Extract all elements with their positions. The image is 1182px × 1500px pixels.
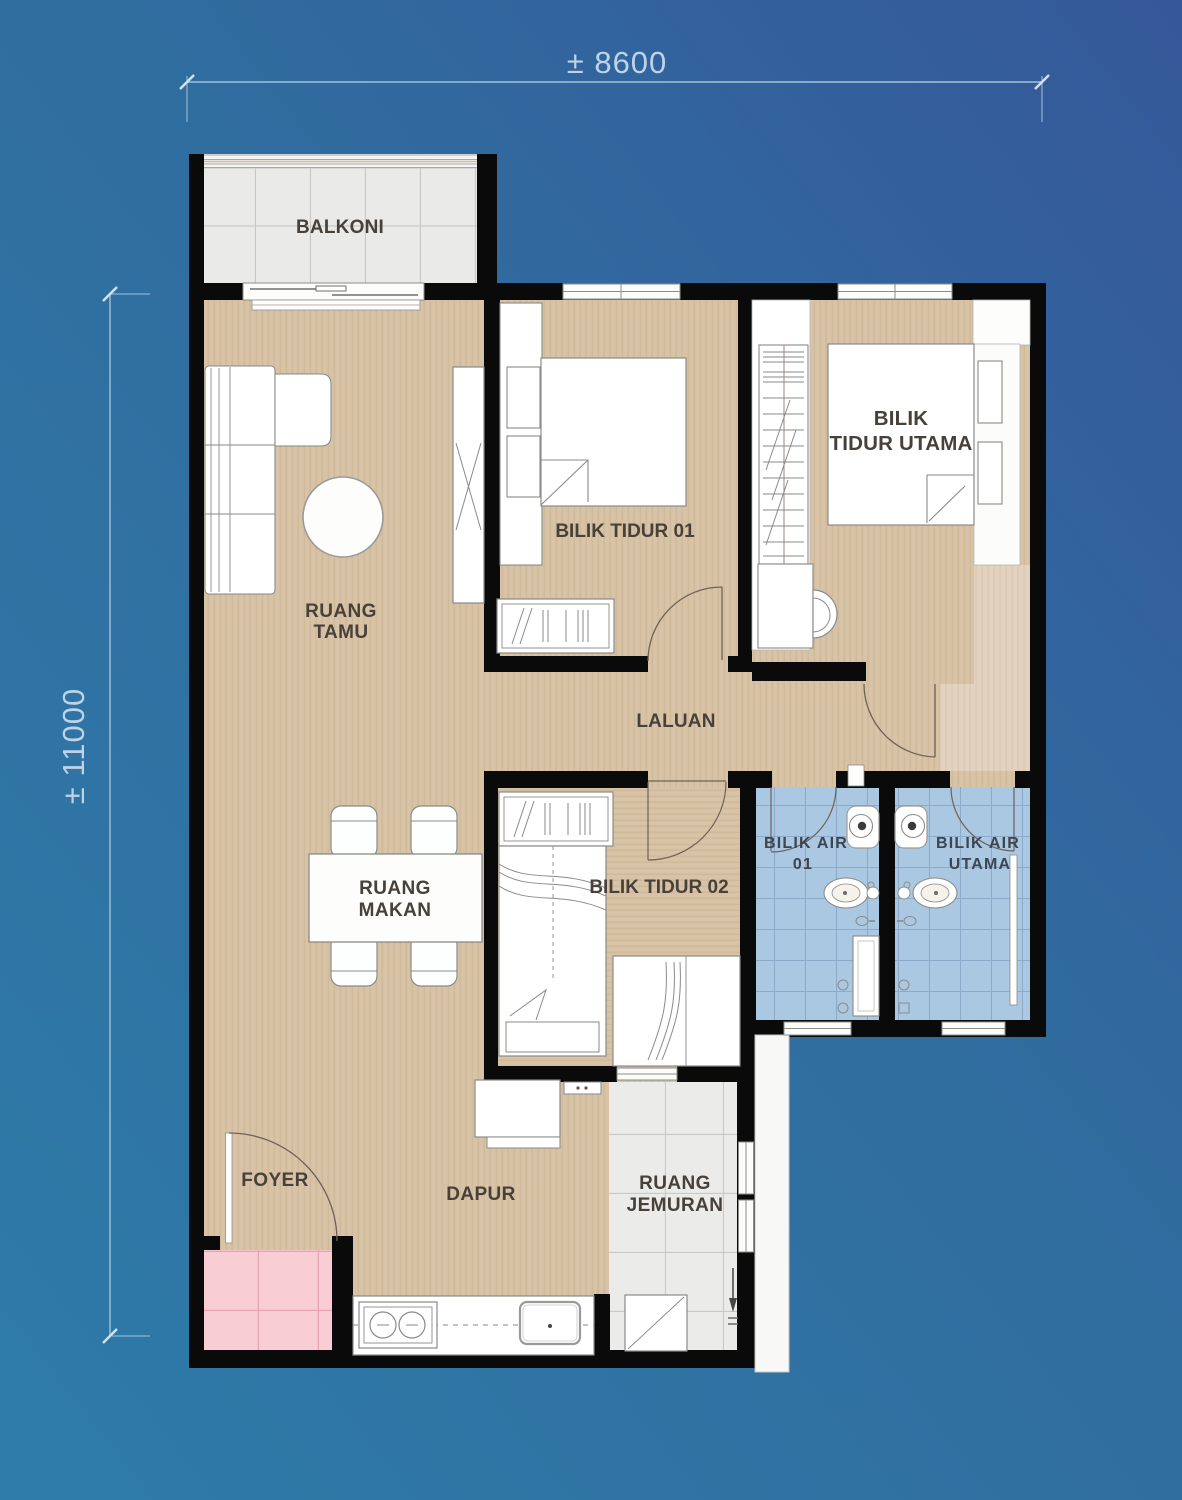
svg-text:BILIK TIDUR 01: BILIK TIDUR 01 [555,521,695,542]
svg-text:01: 01 [793,856,813,873]
svg-text:LALUAN: LALUAN [636,711,715,732]
svg-text:TAMU: TAMU [313,622,368,643]
svg-text:TIDUR UTAMA: TIDUR UTAMA [829,432,972,455]
svg-text:BILIK AIR: BILIK AIR [764,835,848,852]
svg-text:± 11000: ± 11000 [56,688,91,805]
svg-text:RUANG: RUANG [359,878,431,899]
svg-text:RUANG: RUANG [305,601,377,622]
svg-text:BILIK: BILIK [874,407,929,430]
svg-text:BILIK AIR: BILIK AIR [936,835,1020,852]
svg-text:BILIK TIDUR 02: BILIK TIDUR 02 [589,877,728,898]
svg-text:RUANG: RUANG [639,1173,711,1194]
svg-text:FOYER: FOYER [241,1170,308,1191]
svg-text:JEMURAN: JEMURAN [627,1195,724,1216]
svg-text:± 8600: ± 8600 [567,45,668,80]
svg-text:UTAMA: UTAMA [949,856,1012,873]
svg-text:MAKAN: MAKAN [359,900,432,921]
svg-text:DAPUR: DAPUR [446,1184,516,1205]
svg-text:BALKONI: BALKONI [296,217,384,238]
